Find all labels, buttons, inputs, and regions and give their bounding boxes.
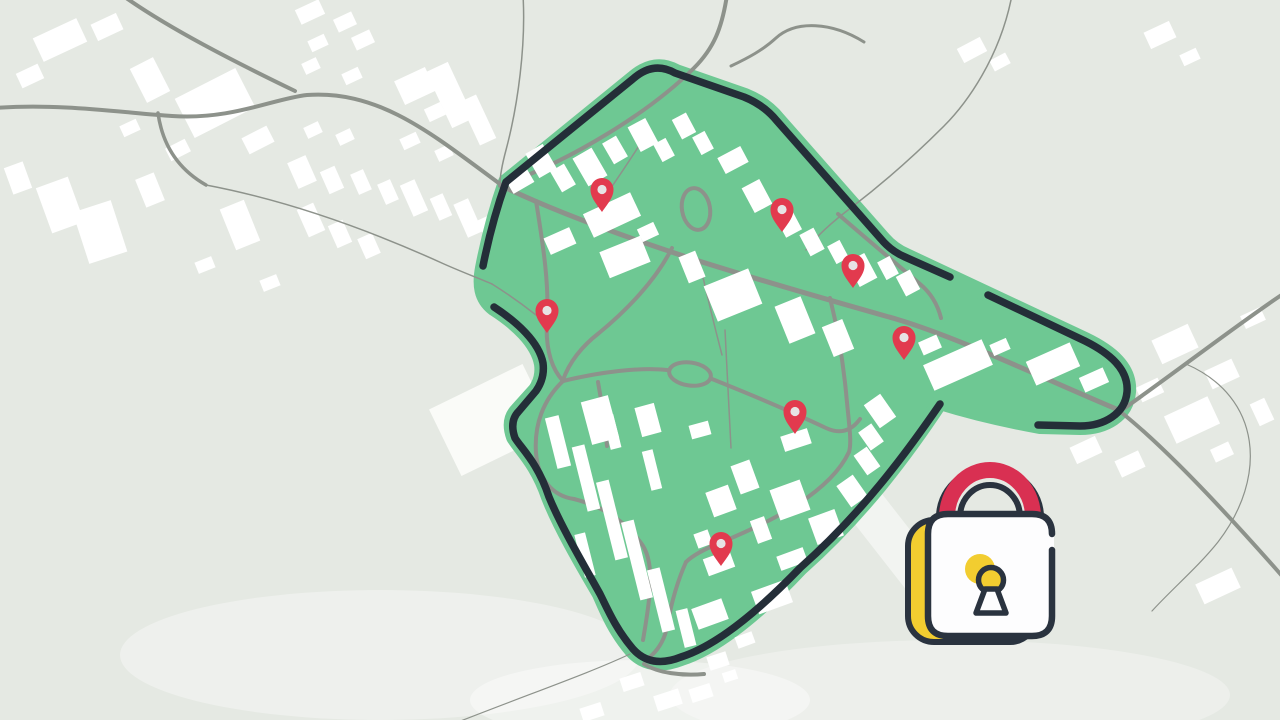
map-pin-dot xyxy=(777,205,786,214)
map-pin-dot xyxy=(790,407,799,416)
map-pin-dot xyxy=(716,539,725,548)
map-canvas xyxy=(0,0,1280,720)
map-pin-dot xyxy=(542,306,551,315)
map-pin-dot xyxy=(899,333,908,342)
map-pin-dot xyxy=(597,185,606,194)
map-pin-dot xyxy=(848,261,857,270)
map-illustration xyxy=(0,0,1280,720)
